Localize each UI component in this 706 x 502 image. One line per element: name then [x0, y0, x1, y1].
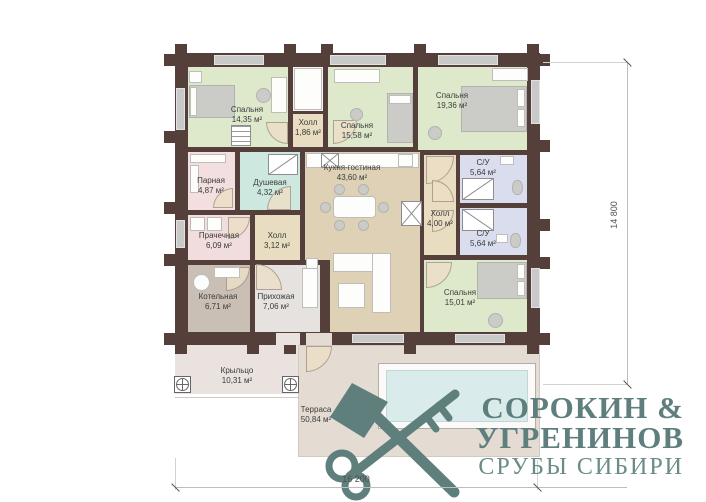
washing-machine: [190, 217, 205, 231]
dimension-label-height: 14 800: [609, 201, 619, 229]
chair: [378, 202, 389, 213]
window: [176, 88, 185, 130]
log-end: [164, 54, 176, 66]
extension-line: [543, 62, 627, 63]
toilet: [510, 233, 521, 248]
window: [176, 220, 185, 248]
window: [531, 80, 540, 124]
room-label-bedroom-4: Спальня15,01 м²: [444, 288, 476, 309]
log-end: [164, 131, 176, 143]
log-end: [284, 44, 296, 56]
sofa: [372, 253, 391, 313]
brand-name-line-2: УГРЕНИНОВ: [476, 423, 684, 453]
porch-door-gap: [276, 333, 300, 345]
plant: [256, 88, 271, 103]
washbasin: [500, 156, 514, 165]
window: [330, 55, 386, 65]
window: [455, 334, 505, 343]
room-label-sauna: Парная4,87 м²: [197, 176, 225, 197]
room-label-hall-2: Холл4,00 м²: [427, 209, 453, 230]
plant: [350, 108, 363, 121]
desk: [492, 68, 528, 81]
floor-plan-page: Спальня14,35 м² Холл1,86 м² Спальня15,58…: [0, 0, 706, 502]
room-label-boiler: Котельная6,71 м²: [199, 292, 238, 313]
pillar-icon: [174, 376, 191, 393]
attic-ladder: [231, 125, 251, 146]
dimension-label-width: 16 200: [342, 474, 370, 484]
room-label-bedroom-1: Спальня14,35 м²: [231, 105, 263, 126]
room-label-hall-3: Холл3,12 м²: [264, 231, 290, 252]
window: [352, 334, 404, 343]
window: [438, 55, 498, 65]
log-end: [164, 202, 176, 214]
bed-pillow: [517, 281, 525, 296]
log-end: [164, 333, 176, 345]
log-end: [538, 140, 550, 152]
brand-name-line-1: СОРОКИН &: [476, 393, 684, 423]
room-label-bedroom-2: Спальня15,58 м²: [341, 121, 373, 142]
log-end: [538, 333, 550, 345]
pillar-icon: [282, 376, 299, 393]
shower-icon: [462, 209, 494, 231]
terrace-door-gap: [306, 333, 332, 345]
bed-pillow: [190, 87, 197, 116]
stove: [398, 154, 413, 167]
log-end: [538, 54, 550, 66]
room-label-bathroom-1: С/У5,64 м²: [470, 158, 496, 179]
dimension-line-vertical: [627, 62, 628, 384]
brand-wordmark: СОРОКИН & УГРЕНИНОВ СРУБЫ СИБИРИ: [476, 393, 684, 481]
room-label-bedroom-3: Спальня19,36 м²: [436, 91, 468, 112]
coffee-table: [338, 283, 365, 308]
chair: [358, 220, 369, 231]
window: [214, 55, 264, 65]
boiler-unit: [214, 267, 240, 278]
room-label-bathroom-2: С/У5,64 м²: [470, 229, 496, 250]
closet-doors: [294, 68, 322, 110]
window: [531, 268, 540, 308]
wardrobe: [189, 71, 202, 83]
toilet: [512, 180, 523, 195]
log-end: [164, 254, 176, 266]
washing-machine: [207, 217, 222, 231]
extension-line: [175, 458, 176, 490]
plant: [428, 126, 442, 140]
chair: [334, 220, 345, 231]
wardrobe: [271, 77, 287, 113]
brand-tagline: СРУБЫ СИБИРИ: [476, 453, 684, 481]
room-label-shower: Душевая4,32 м²: [253, 178, 286, 199]
chair: [358, 184, 369, 195]
room-label-kitchen: Кухня-гостиная43,60 м²: [324, 163, 381, 184]
chair: [334, 184, 345, 195]
dining-table: [333, 196, 376, 218]
room-label-porch: Крыльцо10,31 м²: [221, 366, 254, 387]
dimension-line-horizontal: [175, 487, 627, 488]
log-end: [175, 44, 187, 56]
shower-icon: [268, 154, 298, 175]
porch-edge-line: [175, 397, 298, 398]
bed-pillow: [517, 89, 525, 107]
shaft-icon: [401, 201, 422, 226]
room-label-entry: Прихожая7,06 м²: [257, 292, 294, 313]
wardrobe: [302, 268, 318, 308]
extension-line: [543, 384, 627, 385]
bed-pillow: [517, 264, 525, 279]
log-end: [538, 219, 550, 231]
bed-pillow: [517, 109, 525, 127]
washbasin: [496, 234, 508, 243]
log-end: [404, 342, 416, 354]
plant: [488, 313, 503, 328]
log-end: [414, 44, 426, 56]
bed-pillow: [389, 95, 411, 104]
chair: [320, 202, 331, 213]
boiler: [193, 274, 210, 291]
log-end: [247, 342, 259, 354]
shower-icon: [462, 178, 494, 200]
room-label-laundry: Прачечная6,09 м²: [199, 231, 239, 252]
room-label-hall-1: Холл1,86 м²: [295, 118, 321, 139]
sauna-bench: [190, 154, 226, 163]
desk: [334, 69, 380, 83]
log-end: [175, 342, 187, 354]
